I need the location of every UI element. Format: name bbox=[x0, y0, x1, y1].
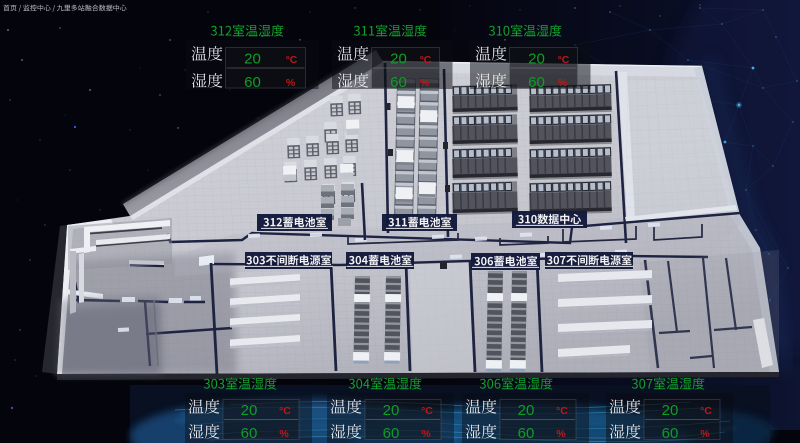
svg-text:60: 60 bbox=[390, 74, 407, 91]
svg-text:%: % bbox=[286, 77, 296, 89]
svg-text:20: 20 bbox=[528, 51, 545, 68]
svg-text:60: 60 bbox=[528, 74, 545, 91]
svg-text:20: 20 bbox=[241, 402, 258, 419]
svg-text:°C: °C bbox=[558, 54, 570, 66]
svg-text:60: 60 bbox=[244, 74, 261, 91]
svg-text:%: % bbox=[421, 428, 431, 440]
svg-text:%: % bbox=[700, 428, 710, 440]
svg-text:°C: °C bbox=[420, 54, 432, 66]
svg-text:%: % bbox=[556, 428, 566, 440]
svg-text:20: 20 bbox=[662, 402, 679, 419]
svg-text:20: 20 bbox=[244, 51, 261, 68]
svg-text:°C: °C bbox=[556, 405, 568, 417]
svg-text:60: 60 bbox=[662, 425, 679, 442]
svg-text:°C: °C bbox=[286, 54, 298, 66]
svg-text:°C: °C bbox=[421, 405, 433, 417]
svg-text:20: 20 bbox=[390, 51, 407, 68]
svg-text:%: % bbox=[420, 77, 430, 89]
svg-text:20: 20 bbox=[383, 402, 400, 419]
svg-text:60: 60 bbox=[383, 425, 400, 442]
svg-text:%: % bbox=[279, 428, 289, 440]
svg-text:°C: °C bbox=[700, 405, 712, 417]
svg-text:60: 60 bbox=[518, 425, 535, 442]
svg-text:°C: °C bbox=[279, 405, 291, 417]
svg-text:%: % bbox=[558, 77, 568, 89]
svg-text:20: 20 bbox=[518, 402, 535, 419]
svg-text:60: 60 bbox=[241, 425, 258, 442]
